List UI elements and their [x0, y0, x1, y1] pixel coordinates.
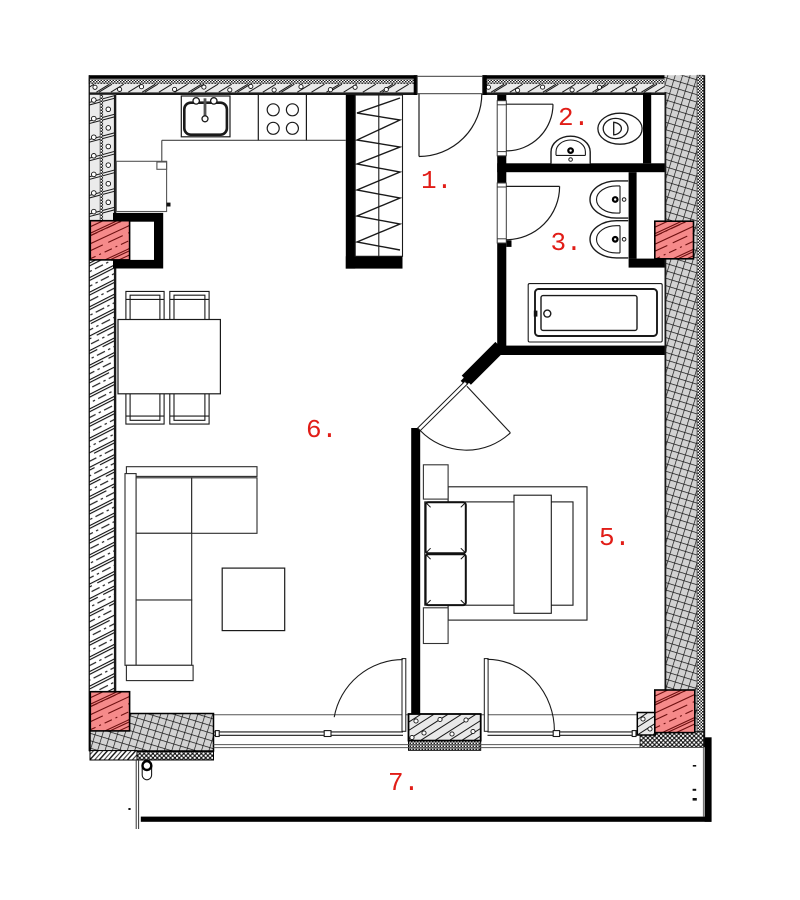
svg-text:7.: 7.	[388, 768, 419, 798]
svg-text:5.: 5.	[599, 523, 630, 553]
svg-text:3.: 3.	[551, 228, 582, 258]
svg-text:2.: 2.	[558, 103, 589, 133]
svg-text:6.: 6.	[306, 415, 337, 445]
svg-text:1.: 1.	[421, 166, 452, 196]
